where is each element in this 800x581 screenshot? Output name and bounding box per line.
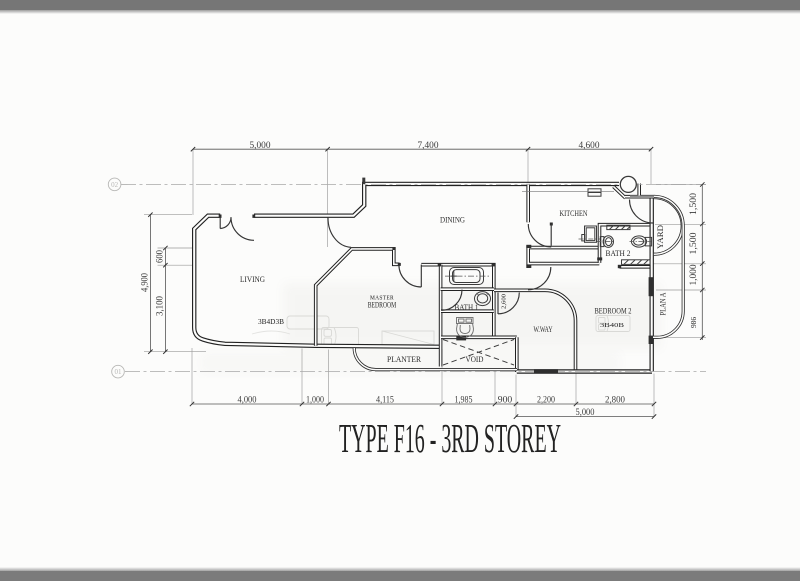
svg-text:BATH 2: BATH 2 [606, 248, 631, 258]
svg-text:LIVING: LIVING [240, 274, 265, 284]
svg-text:5,000: 5,000 [576, 408, 595, 418]
svg-text:986: 986 [690, 316, 698, 328]
svg-text:7,400: 7,400 [418, 141, 439, 151]
svg-text:PLAN A: PLAN A [658, 292, 668, 316]
svg-text:2,200: 2,200 [537, 396, 555, 406]
svg-text:1,000: 1,000 [306, 396, 324, 406]
svg-text:3B40B: 3B40B [600, 322, 625, 329]
svg-text:02: 02 [111, 181, 119, 189]
svg-text:5,000: 5,000 [250, 141, 271, 151]
svg-text:TYPE F16 - 3RD STOREY: TYPE F16 - 3RD STOREY [339, 415, 561, 461]
svg-text:4,900: 4,900 [140, 273, 150, 292]
svg-text:BEDROOM: BEDROOM [368, 300, 397, 310]
svg-text:W.WAY: W.WAY [534, 324, 553, 334]
svg-text:1,985: 1,985 [455, 396, 473, 406]
svg-text:3B4D3B: 3B4D3B [258, 318, 284, 326]
svg-text:BEDROOM 2: BEDROOM 2 [595, 305, 632, 315]
svg-text:2,600: 2,600 [502, 294, 508, 309]
svg-text:4,600: 4,600 [579, 141, 600, 151]
svg-text:01: 01 [115, 368, 123, 376]
svg-text:VOID: VOID [466, 354, 484, 364]
svg-text:2,800: 2,800 [605, 396, 625, 406]
svg-text:1,000: 1,000 [689, 264, 699, 285]
svg-text:900: 900 [498, 396, 513, 406]
svg-text:1,500: 1,500 [689, 232, 699, 254]
svg-text:1,500: 1,500 [689, 193, 699, 215]
svg-text:4,115: 4,115 [376, 396, 394, 406]
svg-text:3,100: 3,100 [155, 296, 165, 316]
svg-text:4,000: 4,000 [238, 396, 257, 406]
svg-text:600: 600 [155, 250, 165, 263]
svg-text:KITCHEN: KITCHEN [560, 208, 589, 218]
svg-text:PLANTER: PLANTER [387, 354, 421, 364]
svg-text:BATH 1: BATH 1 [455, 302, 479, 312]
svg-text:YARD: YARD [655, 225, 665, 249]
svg-text:DINING: DINING [440, 214, 465, 224]
